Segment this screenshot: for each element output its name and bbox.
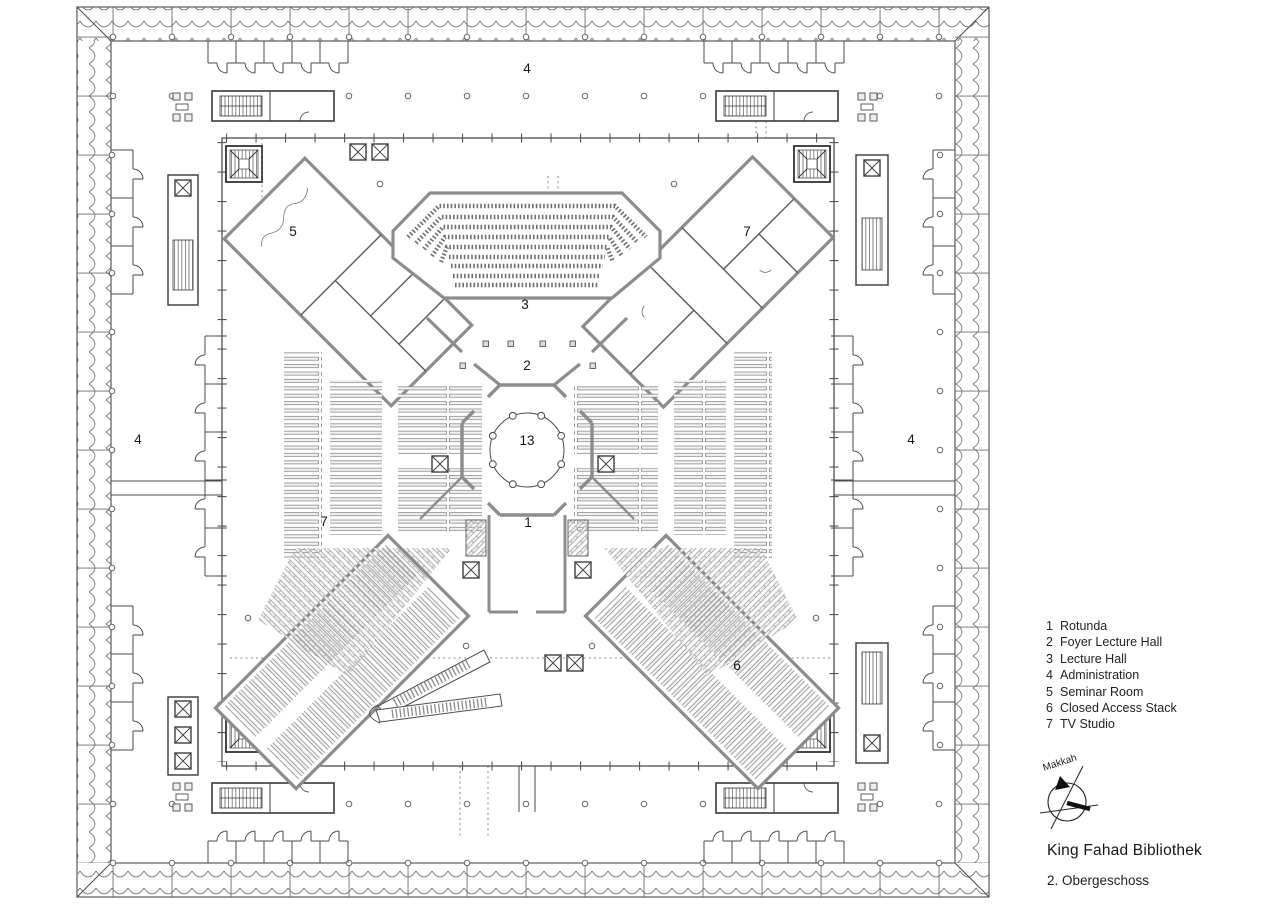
legend-label: Administration <box>1060 667 1139 683</box>
makkah-compass: Makkah <box>1036 754 1116 834</box>
legend-label: Lecture Hall <box>1060 651 1127 667</box>
legend-label: Rotunda <box>1060 618 1107 634</box>
legend-number: 7 <box>1040 716 1053 732</box>
legend-label: Seminar Room <box>1060 684 1143 700</box>
makkah-label: Makkah <box>1042 754 1079 774</box>
legend-number: 4 <box>1040 667 1053 683</box>
legend-label: TV Studio <box>1060 716 1115 732</box>
legend-number: 1 <box>1040 618 1053 634</box>
label-stack-west: 7 <box>320 514 328 529</box>
label-admin-west: 4 <box>134 432 142 447</box>
compass-axis <box>1051 766 1083 829</box>
drawing-sheet: 4 4 4 5 7 3 2 13 1 7 6 1 Rotunda 2 Foyer… <box>0 0 1280 904</box>
legend-number: 2 <box>1040 634 1053 650</box>
legend-number: 3 <box>1040 651 1053 667</box>
label-rotunda: 1 <box>524 515 532 530</box>
legend-item: 3 Lecture Hall <box>1040 651 1177 667</box>
compass-circle <box>1048 783 1086 821</box>
legend-number: 6 <box>1040 700 1053 716</box>
legend-label: Closed Access Stack <box>1060 700 1177 716</box>
label-rotunda-void: 13 <box>519 433 534 448</box>
drawing-subtitle: 2. Obergeschoss <box>1047 873 1202 888</box>
legend-item: 6 Closed Access Stack <box>1040 700 1177 716</box>
label-foyer: 2 <box>523 358 531 373</box>
drawing-title: King Fahad Bibliothek <box>1047 842 1202 860</box>
room-legend: 1 Rotunda 2 Foyer Lecture Hall 3 Lecture… <box>1040 618 1177 733</box>
legend-item: 7 TV Studio <box>1040 716 1177 732</box>
compass-bar <box>1067 803 1090 809</box>
label-closed-stack: 6 <box>733 658 741 673</box>
label-admin-east: 4 <box>907 432 915 447</box>
legend-number: 5 <box>1040 684 1053 700</box>
label-admin-north: 4 <box>523 61 531 76</box>
legend-item: 5 Seminar Room <box>1040 684 1177 700</box>
legend-item: 4 Administration <box>1040 667 1177 683</box>
lecture-hall <box>393 193 660 298</box>
facade-border <box>77 7 989 897</box>
label-seminar-room: 5 <box>289 224 297 239</box>
legend-item: 1 Rotunda <box>1040 618 1177 634</box>
legend-label: Foyer Lecture Hall <box>1060 634 1162 650</box>
label-tv-studio: 7 <box>743 224 751 239</box>
titleblock: King Fahad Bibliothek 2. Obergeschoss <box>1047 842 1202 888</box>
legend-item: 2 Foyer Lecture Hall <box>1040 634 1177 650</box>
label-lecture-hall: 3 <box>521 297 529 312</box>
